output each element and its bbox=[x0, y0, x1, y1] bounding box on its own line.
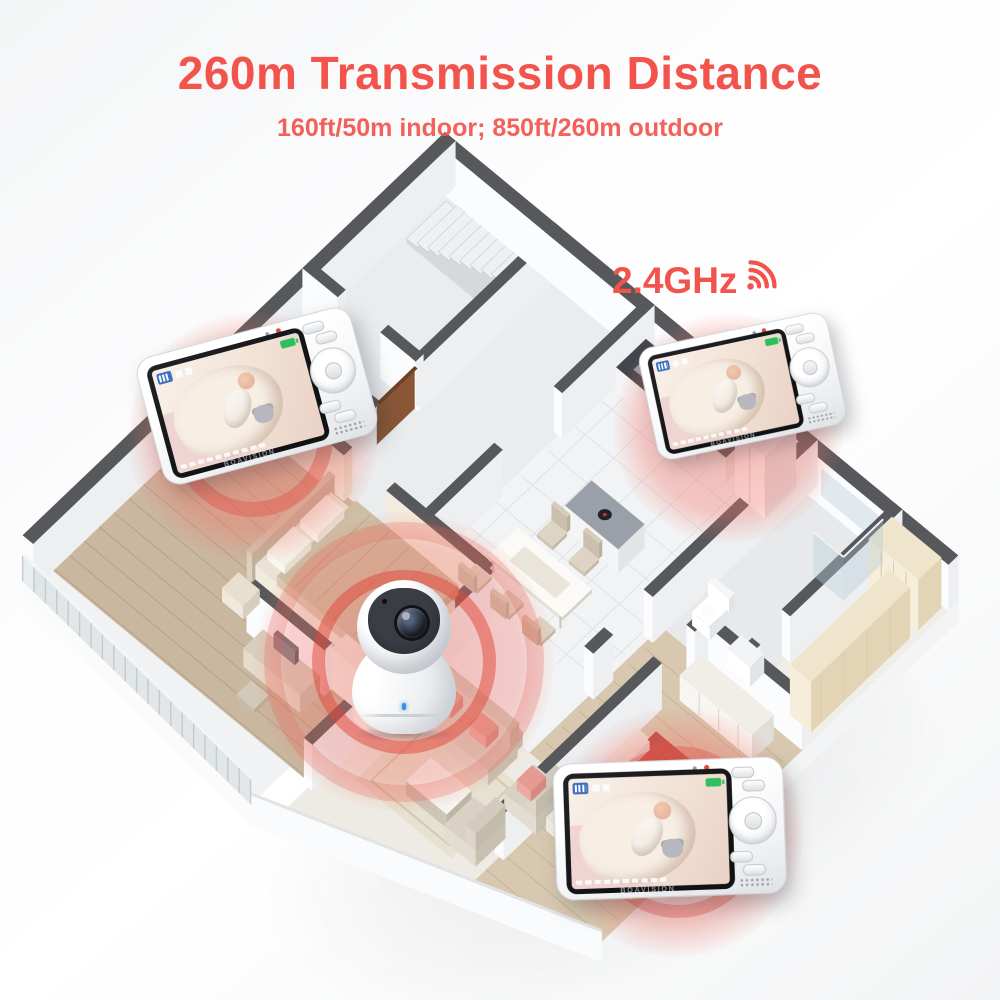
menu-button bbox=[731, 766, 754, 778]
ok-button bbox=[801, 359, 819, 377]
marketing-graphic: 260m Transmission Distance 160ft/50m ind… bbox=[0, 0, 1000, 1000]
monitor-screen bbox=[563, 768, 736, 894]
dpad-control bbox=[728, 796, 777, 845]
zoom-button bbox=[743, 864, 766, 876]
camera-head bbox=[357, 580, 451, 674]
page-subtitle: 160ft/50m indoor; 850ft/260m outdoor bbox=[0, 114, 1000, 143]
ok-button bbox=[323, 360, 344, 381]
back-button bbox=[742, 779, 765, 791]
wifi-signal-icon bbox=[739, 248, 785, 294]
signal-bars-icon bbox=[572, 783, 588, 795]
frequency-label: 2.4GHz bbox=[612, 262, 737, 299]
dpad-control bbox=[786, 344, 833, 391]
battery-icon bbox=[280, 337, 297, 349]
back-button bbox=[795, 332, 816, 345]
battery-icon bbox=[705, 778, 721, 787]
baby-monitor-bottom: BOAVISION bbox=[552, 756, 788, 901]
camera-lens bbox=[397, 608, 427, 638]
baby-video-feed bbox=[568, 774, 730, 890]
camera-face-panel bbox=[368, 588, 440, 654]
signal-bars-icon bbox=[656, 360, 671, 372]
speaker-grille bbox=[739, 877, 773, 888]
baby-video-feed bbox=[151, 332, 325, 474]
pan-tilt-baby-camera bbox=[343, 580, 465, 742]
camera-seam bbox=[358, 714, 450, 717]
dpad-control bbox=[305, 342, 361, 398]
floorplan-illustration bbox=[0, 0, 1000, 1000]
osd-status-icons bbox=[672, 357, 690, 367]
page-title: 260m Transmission Distance bbox=[0, 46, 1000, 100]
camera-status-led bbox=[402, 703, 406, 710]
header: 260m Transmission Distance 160ft/50m ind… bbox=[0, 46, 1000, 143]
signal-bars-icon bbox=[156, 371, 173, 386]
frequency-callout: 2.4GHz bbox=[612, 262, 785, 299]
battery-icon bbox=[765, 337, 779, 347]
ok-button bbox=[744, 812, 762, 830]
talk-button bbox=[730, 851, 753, 863]
monitor-body: BOAVISION bbox=[552, 756, 788, 901]
osd-status-icons bbox=[592, 784, 613, 792]
osd-status-icons bbox=[175, 366, 196, 378]
ir-sensor-dot bbox=[382, 599, 387, 604]
monitor-controls bbox=[723, 764, 781, 889]
